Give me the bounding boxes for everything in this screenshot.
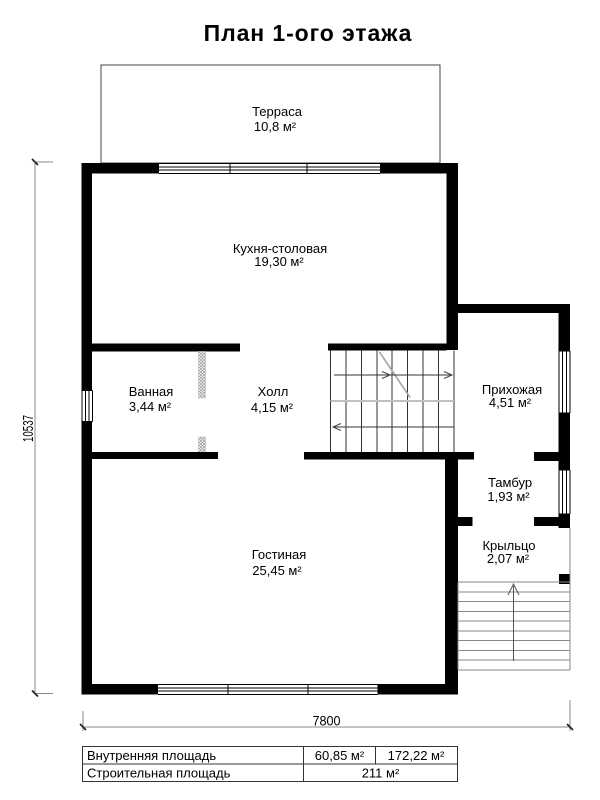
svg-text:172,22 м²: 172,22 м² — [388, 748, 445, 763]
svg-text:4,51 м²: 4,51 м² — [489, 395, 532, 410]
svg-text:1,93 м²: 1,93 м² — [487, 489, 530, 504]
svg-text:3,44 м²: 3,44 м² — [129, 399, 172, 414]
svg-text:Строительная площадь: Строительная площадь — [87, 766, 231, 781]
svg-text:25,45 м²: 25,45 м² — [252, 563, 302, 578]
svg-text:19,30 м²: 19,30 м² — [254, 254, 304, 269]
svg-text:Терраса: Терраса — [252, 104, 303, 119]
svg-text:10,8 м²: 10,8 м² — [254, 119, 297, 134]
svg-text:4,15 м²: 4,15 м² — [251, 400, 294, 415]
svg-text:Холл: Холл — [258, 384, 289, 399]
svg-text:Тамбур: Тамбур — [488, 475, 532, 490]
svg-text:60,85 м²: 60,85 м² — [315, 748, 365, 763]
svg-text:Внутренняя площадь: Внутренняя площадь — [87, 748, 216, 763]
svg-text:План 1-ого этажа: План 1-ого этажа — [204, 20, 413, 46]
svg-text:7800: 7800 — [313, 713, 341, 729]
svg-text:Ванная: Ванная — [129, 384, 174, 399]
svg-text:10537: 10537 — [20, 415, 37, 442]
svg-text:Гостиная: Гостиная — [252, 547, 307, 562]
svg-text:211 м²: 211 м² — [362, 766, 400, 781]
svg-text:2,07 м²: 2,07 м² — [487, 551, 530, 566]
